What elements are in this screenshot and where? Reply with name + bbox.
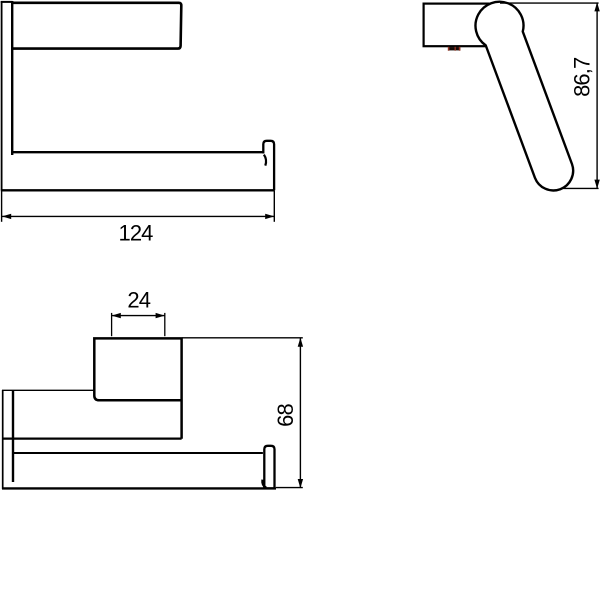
svg-text:86,7: 86,7 [569, 57, 594, 97]
svg-text:124: 124 [118, 220, 153, 245]
svg-text:24: 24 [127, 287, 150, 312]
svg-text:68: 68 [273, 404, 298, 427]
